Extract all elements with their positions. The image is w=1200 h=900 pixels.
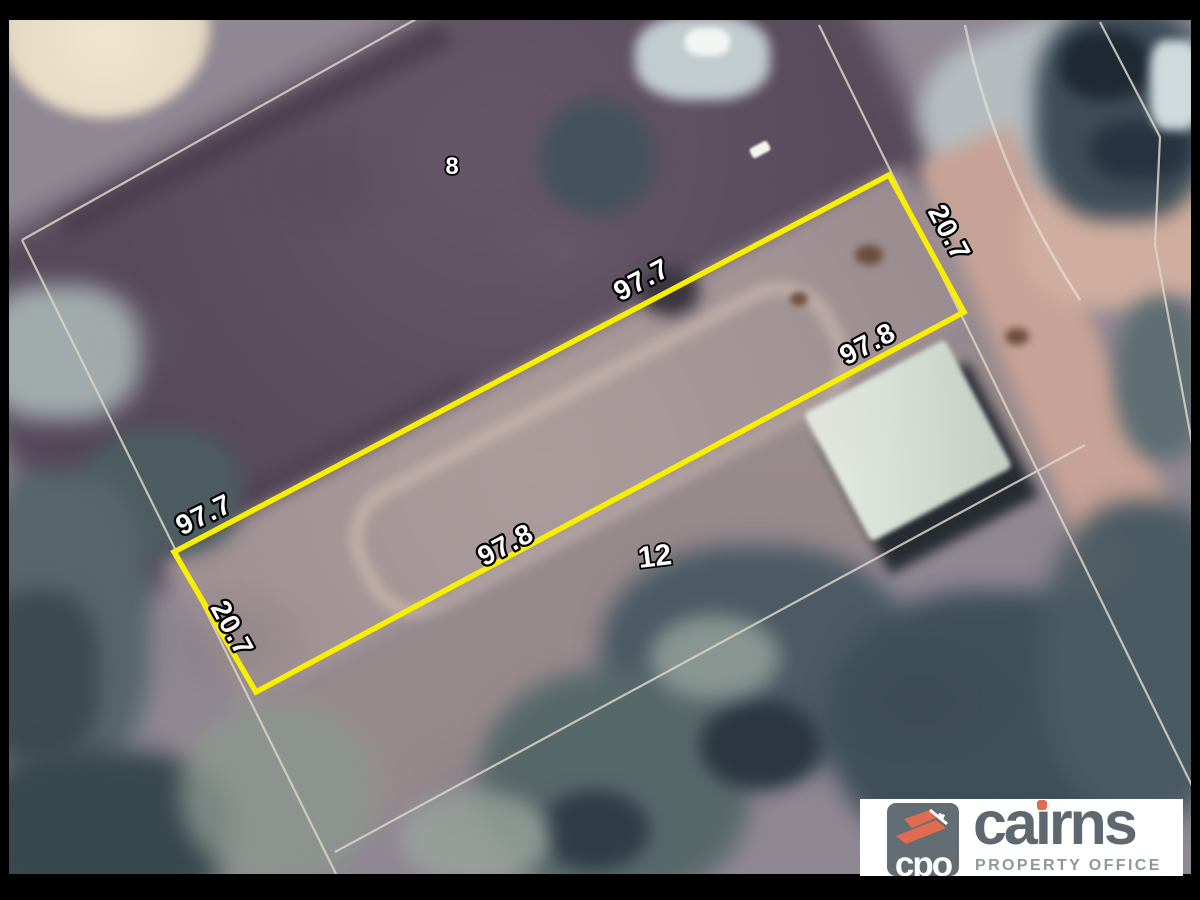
brand-name: caırns bbox=[973, 791, 1178, 857]
aerial-photo bbox=[0, 0, 1200, 900]
brand-name-part: rns bbox=[1049, 789, 1135, 857]
letterbox-left bbox=[0, 0, 9, 900]
aerial-property-map: 97.7 97.7 20.7 20.7 97.8 97.8 8 12 cpo c… bbox=[0, 0, 1200, 900]
brand-text: caırns PROPERTY OFFICE bbox=[973, 791, 1178, 875]
cpo-roof-icon bbox=[894, 807, 952, 845]
brand-name-part: ca bbox=[973, 789, 1035, 857]
brand-tagline: PROPERTY OFFICE bbox=[975, 857, 1178, 875]
cairns-property-office-logo: cpo caırns PROPERTY OFFICE bbox=[860, 799, 1183, 876]
brand-i-column: ı bbox=[1035, 791, 1049, 857]
letterbox-right bbox=[1191, 0, 1200, 900]
photo-texture bbox=[0, 0, 1200, 900]
letterbox-bottom bbox=[0, 874, 1200, 900]
cpo-badge: cpo bbox=[887, 803, 959, 876]
cpo-abbr-text: cpo bbox=[887, 847, 959, 876]
letterbox-top bbox=[0, 0, 1200, 20]
brand-i-dot-icon bbox=[1037, 800, 1047, 810]
